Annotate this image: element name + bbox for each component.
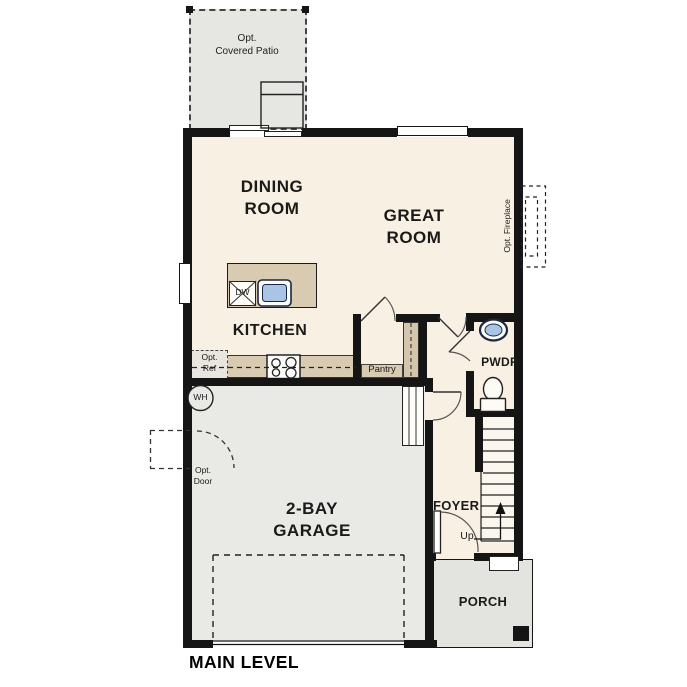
patio-slider-panel-outer	[229, 125, 269, 131]
wall-garage-bottom-right	[404, 640, 437, 648]
wall-garage-porch	[425, 553, 433, 648]
wall-hall-top	[396, 314, 440, 322]
wall-right	[514, 128, 523, 561]
furnace-closet	[402, 386, 424, 446]
garage-door-line	[213, 641, 404, 645]
wall-pwdr-bottom	[466, 409, 523, 417]
opt-door-label: Opt. Door	[186, 465, 220, 487]
patio-label: Opt. Covered Patio	[187, 32, 307, 58]
wall-kitchen-garage	[183, 378, 433, 386]
stairs-up-label: Up	[452, 530, 482, 542]
great-room-window	[397, 126, 468, 136]
patio-corner-post-left	[186, 6, 193, 13]
wall-garage-right-upper	[425, 378, 433, 392]
wall-left	[183, 128, 192, 648]
porch-post	[513, 626, 529, 641]
great-room-label: GREAT ROOM	[354, 205, 474, 249]
stairs-area	[483, 417, 514, 543]
wall-garage-right-main	[425, 420, 433, 561]
water-heater-label: WH	[188, 393, 213, 403]
wall-closet-right	[419, 314, 427, 386]
wall-pwdr-top	[466, 313, 523, 322]
wall-stairs-left	[475, 417, 483, 472]
kitchen-label: KITCHEN	[210, 322, 330, 340]
pantry-label: Pantry	[352, 365, 412, 376]
garage-label: 2-BAY GARAGE	[252, 498, 372, 542]
patio-area	[189, 9, 307, 130]
porch-label: PORCH	[443, 595, 523, 610]
patio-corner-post-right	[302, 6, 309, 13]
wall-garage-bottom-left	[183, 640, 213, 648]
opt-ref-label: Opt. Ref	[191, 352, 228, 374]
front-door-step	[489, 556, 519, 571]
level-title: MAIN LEVEL	[189, 652, 299, 672]
floor-plan: DINING ROOM GREAT ROOM KITCHEN 2-BAY GAR…	[0, 0, 687, 687]
dining-room-label: DINING ROOM	[212, 176, 332, 220]
dining-window	[179, 263, 191, 304]
wall-pwdr-left-upper	[466, 313, 474, 331]
dishwasher-label: DW	[229, 288, 256, 298]
wall-top-mid	[302, 128, 397, 137]
foyer-label: FOYER	[433, 499, 479, 514]
opt-fireplace-label: Opt. Fireplace	[503, 185, 513, 267]
patio-slider-panel-inner	[264, 131, 302, 137]
opt-fireplace-dashed	[522, 186, 546, 267]
pwdr-label: PWDR	[470, 356, 530, 370]
kitchen-counter	[227, 355, 357, 378]
wall-foyer-bottom-left	[425, 553, 436, 561]
